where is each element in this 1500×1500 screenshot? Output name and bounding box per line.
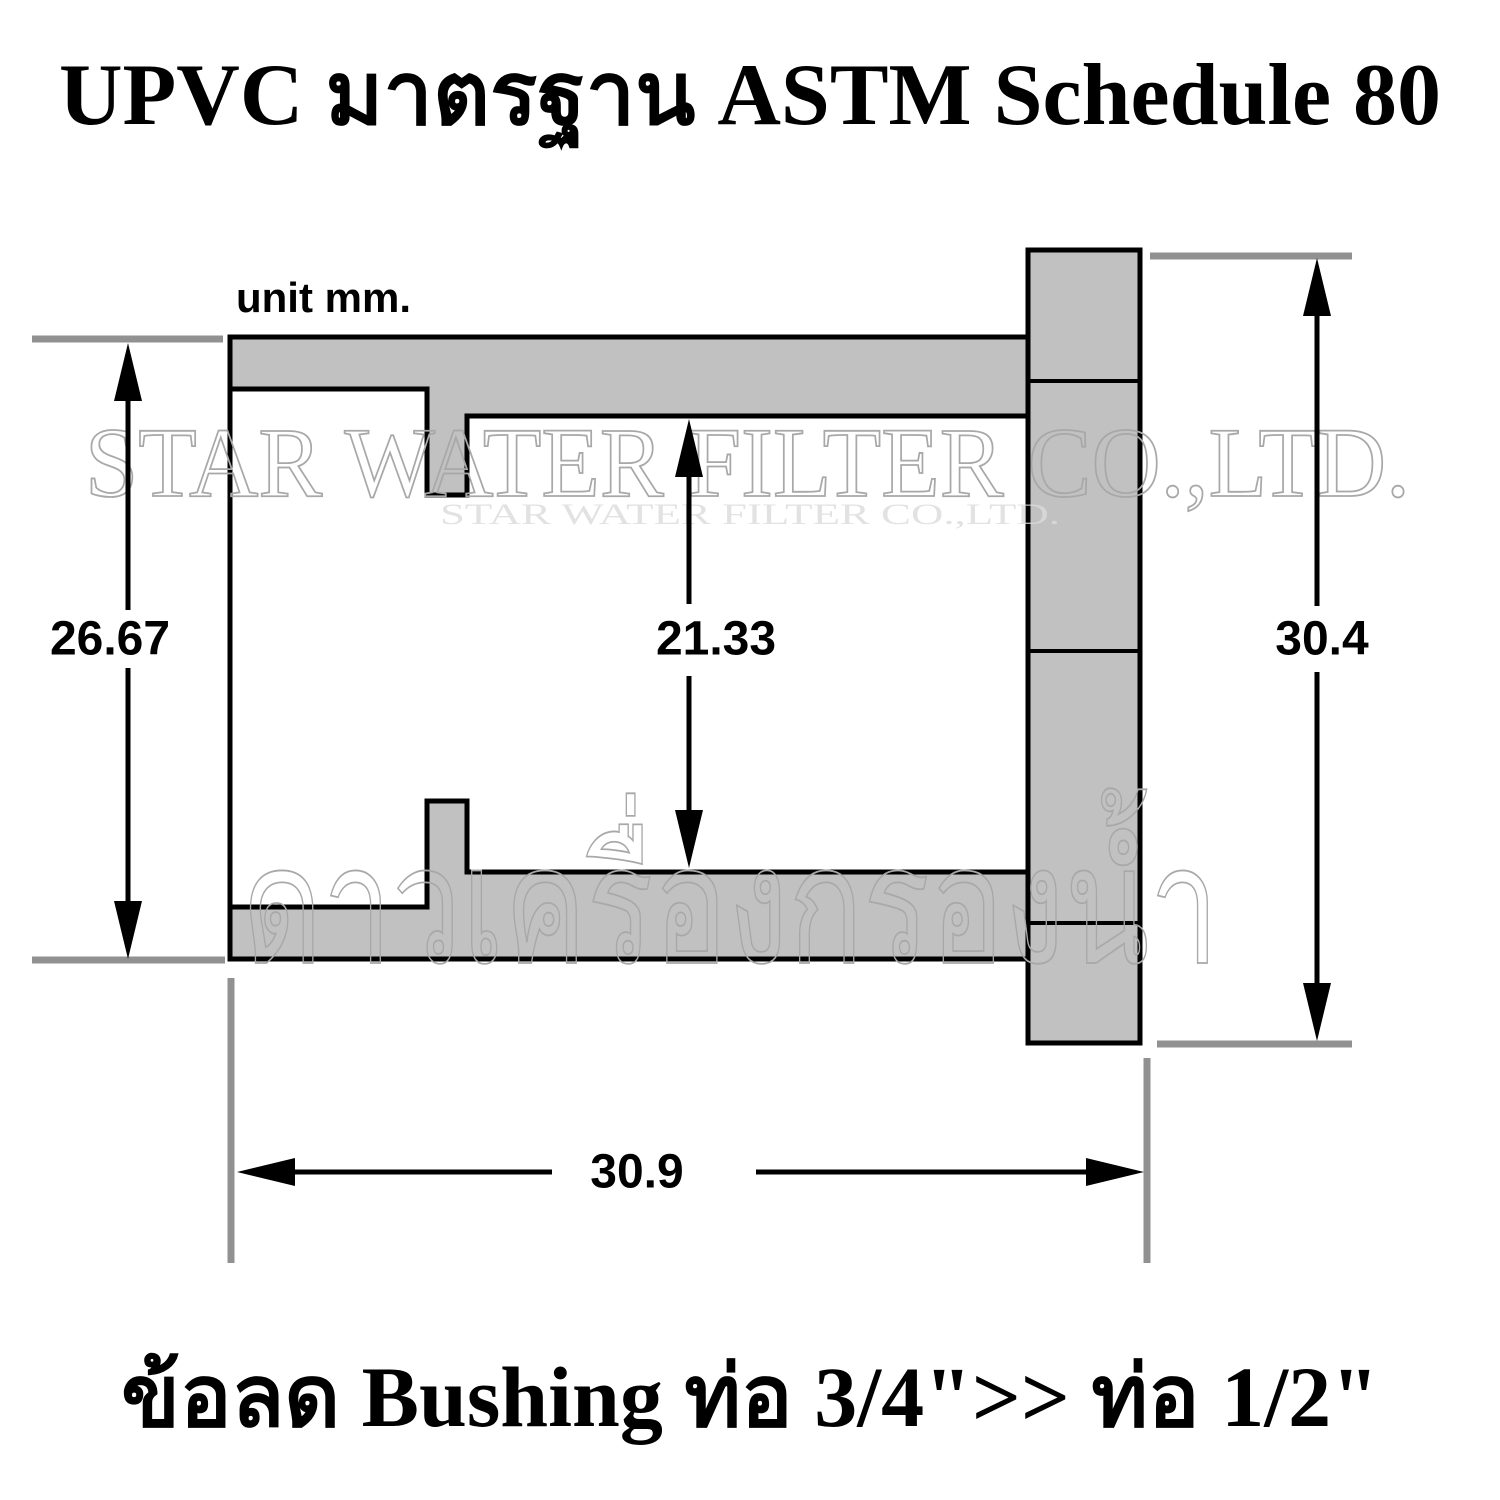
dim-bore-label: 21.33 — [652, 612, 780, 667]
dim-length — [237, 1158, 1144, 1186]
product-caption: ข้อลด Bushing ท่อ 3/4">> ท่อ 1/2" — [121, 1354, 1379, 1440]
watermarks: STAR WATER FILTER CO.,LTD. STAR WATER FI… — [85, 407, 1410, 999]
diagram-page: UPVC มาตรฐาน ASTM Schedule 80 unit mm. S… — [0, 0, 1500, 1500]
bushing-drawing: STAR WATER FILTER CO.,LTD. STAR WATER FI… — [0, 0, 1500, 1500]
watermark-company-en-faint: STAR WATER FILTER CO.,LTD. — [440, 498, 1060, 531]
dim-socket-outer-label: 26.67 — [46, 612, 174, 667]
watermark-company-th: ดาวเครื่องกรองน้ำ — [242, 788, 1219, 999]
dim-length-label: 30.9 — [586, 1145, 687, 1200]
dim-flange-label: 30.4 — [1271, 612, 1372, 667]
